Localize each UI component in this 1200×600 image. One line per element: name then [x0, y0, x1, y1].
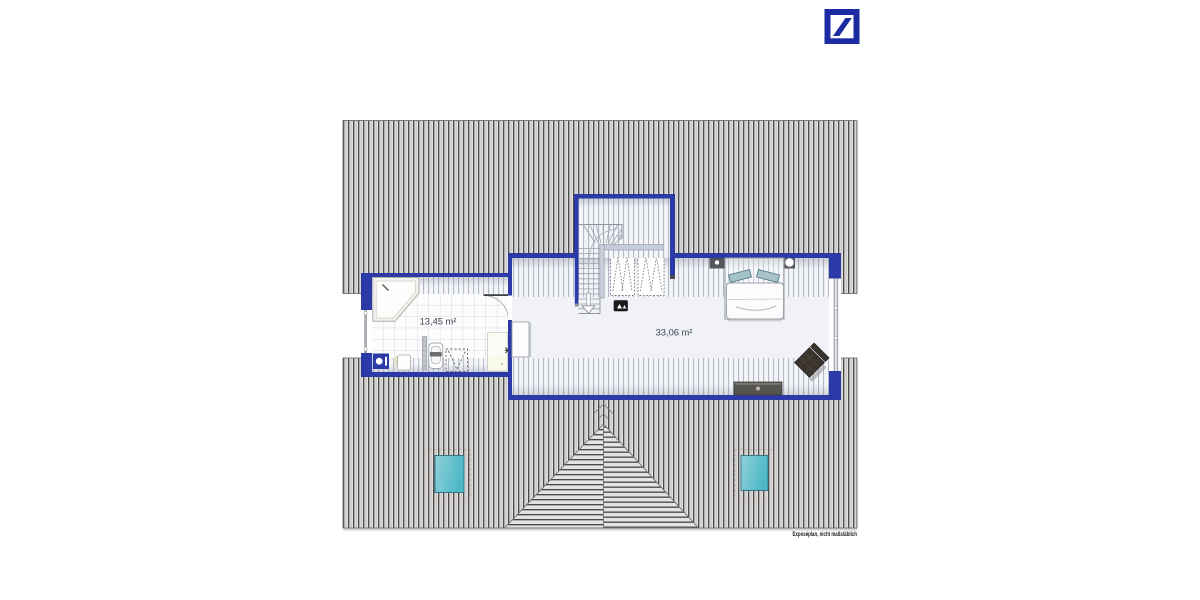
- svg-text:Exposéplan, nicht maßstäblich: Exposéplan, nicht maßstäblich: [793, 531, 858, 538]
- svg-text:13,45 m²: 13,45 m²: [420, 317, 457, 327]
- svg-text:33,06 m²: 33,06 m²: [656, 328, 693, 338]
